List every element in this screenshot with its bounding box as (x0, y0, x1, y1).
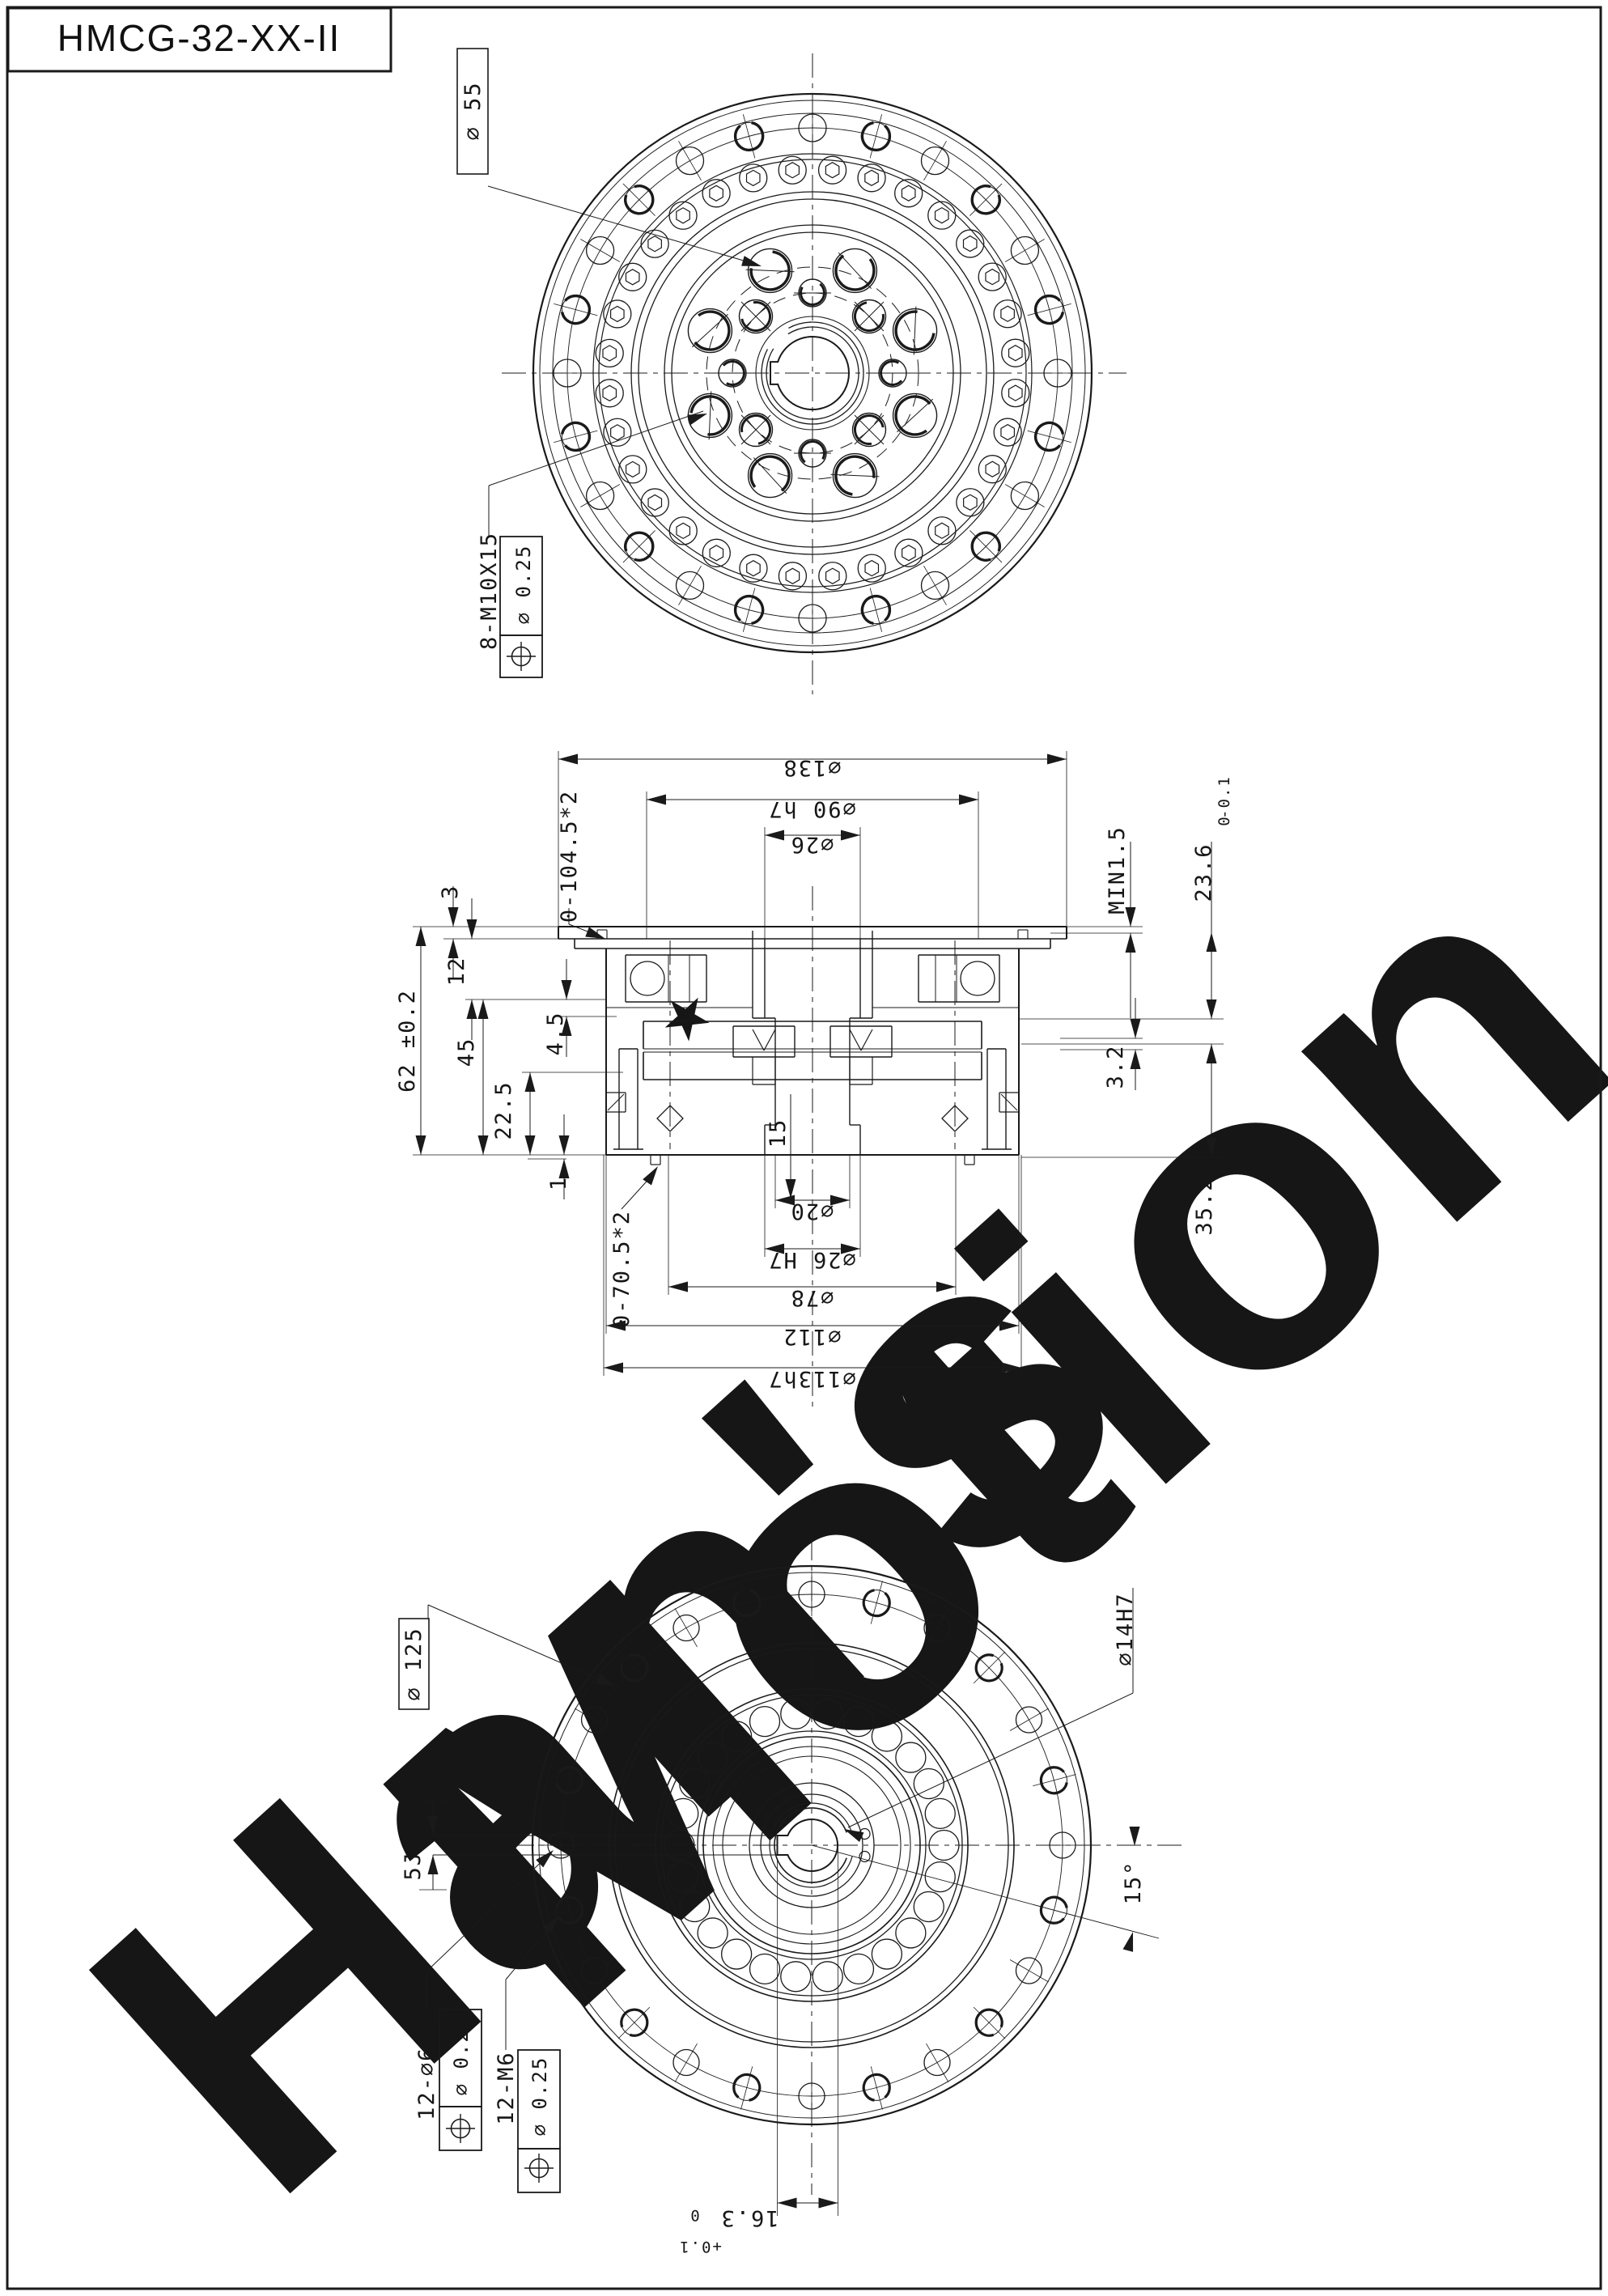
dim-45: 45 (454, 1038, 479, 1067)
top-tapped-holes-label: 8-M10X15 (477, 532, 502, 650)
bottom-angle-label: 15° (1121, 1861, 1146, 1905)
dim-3-2: 3.2 (1103, 1045, 1128, 1089)
dim-key-depth-tol-lower: 0 (689, 2206, 699, 2224)
dim-dia-input-bore: ∅26 (790, 832, 834, 857)
dim-min-clearance: MIN1.5 (1105, 825, 1130, 915)
dim-35-2: 35.2 (1192, 1176, 1217, 1235)
bottom-tapped-holes-label: 12-M6 (494, 2051, 519, 2124)
dim-3: 3 (438, 885, 463, 899)
dim-4-5: 4.5 (543, 1012, 568, 1056)
bottom-bolt-circle-label: ∅ 125 (401, 1627, 426, 1700)
bottom-center-bore-label: ∅14H7 (1113, 1592, 1138, 1666)
position-tolerance-icon (507, 642, 536, 671)
dim-key-depth-tol-upper: +0.1 (678, 2238, 722, 2256)
dim-dia-spigot: ∅90 h7 (767, 796, 856, 821)
dim-dia-112: ∅112 (782, 1324, 841, 1349)
dim-1: 1 (546, 1176, 571, 1190)
bottom-position-tolerance-1: ∅ 0.25 (450, 2016, 473, 2096)
bottom-clearance-holes-label: 12-∅6.6 (414, 2017, 439, 2120)
page-title: HMCG-32-XX-II (57, 17, 342, 59)
dim-dia-flange: ∅138 (782, 755, 841, 780)
dim-key-depth: 16.3 (719, 2205, 779, 2230)
dim-23-6: 23.6 (1191, 842, 1216, 902)
dim-dia-26h7: ∅26 H7 (767, 1247, 856, 1272)
engineering-drawing: Han's Motion ★ HMCG-32-XX-II ∅ 55 8-M10X… (0, 0, 1608, 2296)
watermark: Han's Motion ★ (4, 631, 1608, 2282)
top-bolt-circle-label: ∅ 55 (460, 81, 486, 140)
top-view-labels: ∅ 55 8-M10X15 ∅ 0.25 (457, 49, 542, 677)
dim-15: 15 (766, 1118, 791, 1148)
dim-dia-20: ∅20 (790, 1199, 834, 1224)
dim-oring-bottom: 0-70.5*2 (609, 1210, 634, 1328)
dim-dia-113: ∅113h7 (767, 1366, 856, 1391)
dim-62: 62 ±0.2 (395, 989, 420, 1093)
bottom-position-tolerance-2: ∅ 0.25 (528, 2056, 551, 2137)
dim-12: 12 (444, 957, 469, 987)
position-tolerance-icon (524, 2154, 554, 2183)
top-position-tolerance: ∅ 0.25 (512, 545, 535, 625)
bottom-key-width-label: 5JS9 (401, 1821, 426, 1880)
drawing-page: Han's Motion ★ HMCG-32-XX-II ∅ 55 8-M10X… (0, 0, 1608, 2296)
dim-22-5: 22.5 (491, 1080, 516, 1140)
dim-oring-top: 0-104.5*2 (557, 790, 582, 923)
dim-dia-78: ∅78 (790, 1285, 834, 1310)
top-view (488, 53, 1126, 694)
dim-23-6-tol-lower: -0.1 (1216, 775, 1233, 819)
